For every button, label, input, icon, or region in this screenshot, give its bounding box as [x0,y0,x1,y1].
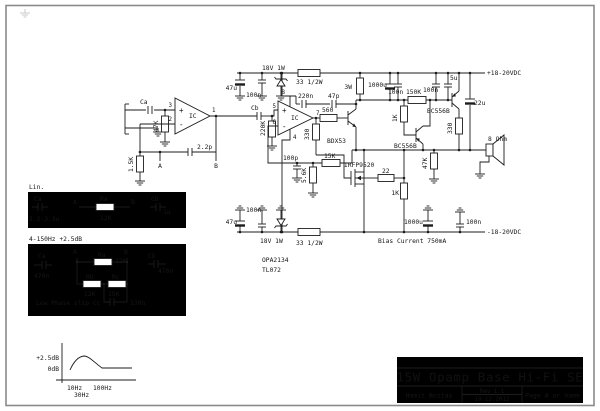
ground-icon [235,206,245,214]
resistor-label: 330 [447,122,454,134]
speaker-icon: 8 Ohm [475,135,507,178]
cap-label: 100p [283,155,298,162]
cap-label: 22u [474,100,486,107]
ground-icon [423,206,433,214]
resistor-name: Ra [98,252,106,259]
resistor-label: 47K [153,120,160,132]
capacitor-100p: 100p [283,155,302,182]
pin-7: 7 [316,111,320,117]
cap-value: 2.2-3.3u [29,216,60,223]
x-tick-30hz: 30Hz [74,392,89,399]
eq-title: 4-150Hz +2.5dB [29,236,82,243]
schematic-page: Ca 47K + - IC 3 2 1 2.2p [0,0,600,411]
opamp-type-2: TL072 [262,267,281,274]
minus-sign: - [282,122,287,131]
pnp-transistor-bc556b-lower-icon: BC556B [394,100,430,150]
resistor-name: Rc [112,274,120,281]
ground-icon [160,138,170,146]
node-a-label: A [73,199,77,206]
transistor-label: BDX53 [327,138,346,145]
capacitor-100n-bottom: 100n [455,208,481,232]
capacitor-47u-bottom: 47u [226,206,245,232]
ground-icon [276,206,286,214]
response-graph: +2.5dB 0dB 10Hz 100Hz 30Hz [36,343,136,399]
capacitor-220n: 220n [298,93,313,108]
lin-network-box: Lin. Ca 2.2-3.3u A Ra 12K B Cb 1u [28,184,186,228]
page-field: Page # or name [525,392,580,400]
zener-label: 18V 1W [262,65,285,72]
opamp-type-1: OPA2134 [262,257,289,264]
resistor-label: 220K [260,121,267,136]
resistor-value: 22K [115,258,127,265]
cap-value: 470n [34,273,49,280]
resistor-label: 15K [324,153,336,160]
input-connector [125,104,129,134]
resistor-330-bias: 330 [447,118,463,150]
response-curve [70,356,132,370]
opamp1-label: IC [189,113,197,120]
author-name: Hamit Boztas [406,392,453,400]
ground-icon [455,208,465,216]
capacitor-47p: 47p [328,93,340,108]
pin-2: 2 [169,117,173,123]
capacitor-100n-top: 100n [246,73,267,100]
schematic-canvas: Ca 47K + - IC 3 2 1 2.2p [0,0,600,411]
resistor-name: Ra [100,196,108,203]
resistor-5k6-ground: 5.6K [301,163,318,197]
resistor-3w: 3W [344,73,363,100]
ground-icon [429,175,439,183]
node-a-label: A [158,163,162,170]
resistor-label: 5.6K [301,168,308,183]
cap-label: Ca [140,99,148,106]
cap-label: 47p [328,93,340,100]
node-b-label: B [124,249,128,256]
x-tick-10hz: 10Hz [67,385,82,392]
cap-value: 1u [163,209,171,216]
pin-4: 4 [293,135,297,141]
drawing-title: 15W Opamp Base Hi-Fi SE [397,370,584,385]
cap-label: Cb [251,105,259,112]
supply-negative: 47u 100n 18V 1W 33 1/2W -18-20VDC [226,206,522,247]
cap-label: 100n [423,87,438,94]
cap-label: 47u [226,219,238,226]
opamp1-icon: + - IC 3 2 1 [169,98,217,134]
zener-label: 18V 1W [260,238,283,245]
x-tick-100hz: 100Hz [93,385,112,392]
capacitor-ca-input: Ca [140,99,152,114]
resistor-1k5-ground: 1.5K [128,152,145,185]
resistor-label: 150K [406,89,421,96]
resistor-560: 560 [320,107,337,122]
resistor-value: 15K [108,291,120,298]
resistor-label: 1K [392,114,399,122]
cap-label: 47u [226,85,238,92]
mosfet-irfp9520-icon: IRFP9520 [344,150,375,232]
resistor-label: 1K [391,190,399,197]
resistor-name: Rb [86,274,94,281]
lin-title: Lin. [29,184,44,191]
cap-label: 1000u [368,82,387,89]
cap-label: 100n [388,89,403,96]
ground-icon [308,189,318,197]
mosfet-label: IRFP9520 [344,162,375,169]
node-a-label: A [73,249,77,256]
resistor-label: 330 [304,128,311,140]
cap-label: Cb [151,196,159,203]
speaker-label: 8 Ohm [488,136,507,143]
resistor-label: 33 1/2W [296,79,323,86]
positive-rail-label: +18-20VDC [487,70,521,77]
eq-network-box: 4-150Hz +2.5dB Ca 470n A B Ra 22K Rb 12K [28,236,186,316]
resistor-33-bottom: 33 1/2W [296,229,323,248]
capacitor-2p2-feedback: 2.2p [188,144,212,156]
node-b-label: B [131,199,135,206]
input-stage: Ca 47K + - IC 3 2 1 2.2p [125,98,257,185]
capacitor-1000u-bottom: 1000u [404,206,433,232]
y-tick-2p5db: +2.5dB [36,355,59,362]
capacitor-cb-coupling: Cb [251,105,261,120]
cap-label: Cc [93,300,101,307]
corner-ground-icon [20,9,30,17]
cap-label: 2.2p [197,144,212,151]
output-section: 8 Ohm 1000u 100n [352,135,507,232]
plus-sign: + [282,106,287,115]
capacitor-100n-bottom-supply: 100n [246,206,267,232]
pin-6: 6 [273,120,277,126]
resistor-label: 47K [422,157,429,169]
negative-rail-label: -18-20VDC [487,229,521,236]
cap-label: 5u [450,75,458,82]
pin-5: 5 [273,104,277,110]
capacitor-100n-bias-b: 100n [423,73,440,100]
zener-diode-bottom-icon: 18V 1W [260,206,288,245]
resistor-33-top: 33 1/2W [296,70,323,87]
cap-label: Ca [38,253,46,260]
ground-icon [267,142,277,150]
resistor-47k-input: 47K [153,110,170,146]
resistor-label: 22 [382,168,390,175]
cap-label: Ca [34,196,42,203]
resistor-label: 3W [344,84,352,91]
cap-value: 330n [130,300,145,307]
resistor-label: 1.5K [128,157,135,172]
resistor-330-gate: 330 [304,118,320,155]
resistor-1k-bias: 1K [392,100,416,135]
node-b-label: B [214,163,218,170]
capacitor-22u: 22u [465,73,486,150]
cap-label: Cb [148,253,156,260]
opamp2-label: IC [291,115,299,122]
pin-3: 3 [169,103,173,109]
minus-sign: - [179,120,184,129]
plus-sign: + [179,106,184,115]
date: 19.12.2012 [475,397,510,403]
ground-icon [475,170,485,178]
resistor-47k-bias: 47K [422,150,439,183]
transistor-label: BC556B [394,143,417,150]
cap-label: 100n [466,219,481,226]
y-tick-0db: 0dB [48,366,60,373]
ground-icon [135,177,145,185]
cap-value: 470n [158,268,173,275]
resistor-label: 560 [322,107,334,114]
bias-current-note: Bias Current 750mA [378,238,446,245]
cap-label: 100n [246,92,261,99]
cap-label: 220n [298,93,313,100]
title-block: 15W Opamp Base Hi-Fi SE Hamit Boztas Rev… [397,357,584,403]
resistor-value: 12K [100,215,112,222]
cap-label: 1000u [404,219,423,226]
revision: Rev 1.1 [480,389,505,395]
resistor-label: 33 1/2W [296,240,323,247]
capacitor-47u-top: 47u [226,73,245,100]
pin-1: 1 [212,108,216,114]
resistor-22: 22 [378,168,394,182]
low-phase-note: Low Phase slip [36,300,89,307]
resistor-value: 12K [84,291,96,298]
cap-label: 100n [246,207,261,214]
ground-icon [235,92,245,100]
